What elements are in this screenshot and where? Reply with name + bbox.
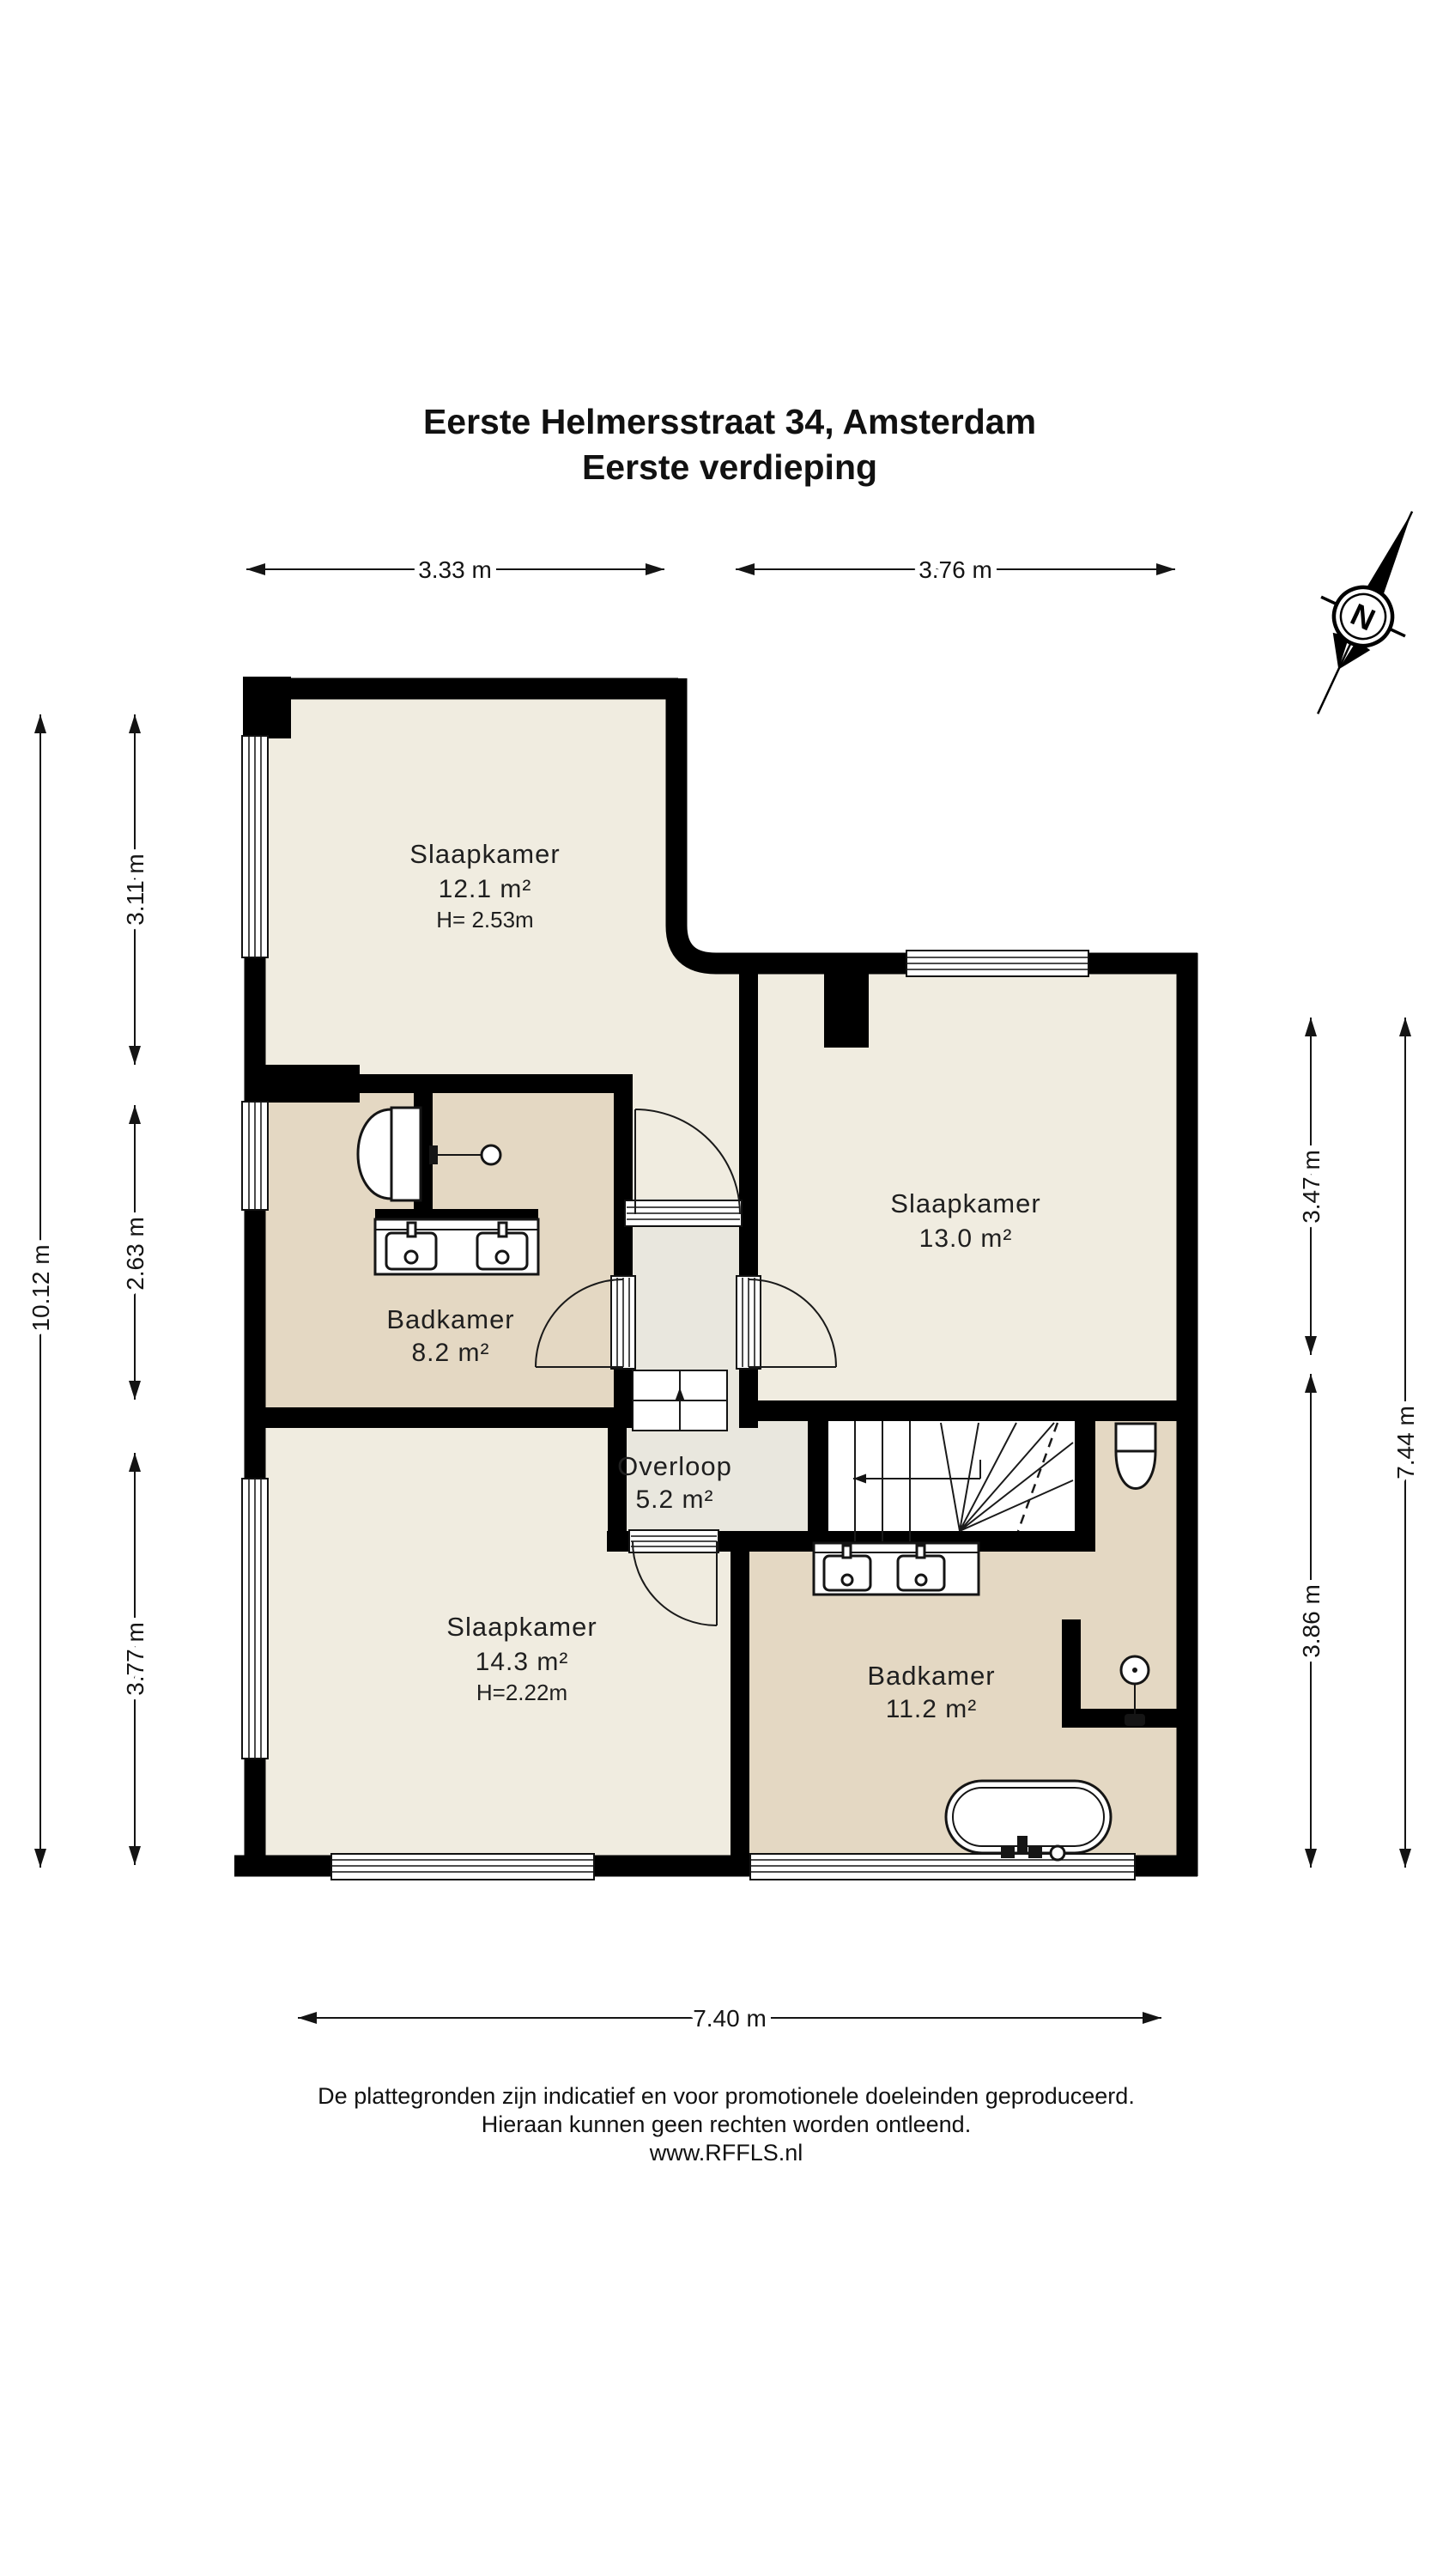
- room-name: Badkamer: [386, 1304, 514, 1334]
- window-icon: [906, 951, 1088, 976]
- dimension-value: 3.77 m: [122, 1622, 149, 1696]
- room-area: 8.2 m²: [411, 1339, 489, 1367]
- dimension-left-3: 3.77 m: [122, 1453, 149, 1865]
- footer-disclaimer: De plattegronden zijn indicatief en voor…: [318, 2083, 1135, 2166]
- dimension-left-1: 3.11 m: [122, 714, 149, 1065]
- dimension-left-outer: 10.12 m: [27, 714, 54, 1868]
- double-sink-icon: [375, 1219, 538, 1274]
- room-name: Badkamer: [867, 1661, 995, 1691]
- room-name: Overloop: [617, 1451, 732, 1481]
- room-area: 5.2 m²: [635, 1485, 713, 1514]
- room-height: H=2.22m: [476, 1680, 567, 1705]
- bathtub-icon: [946, 1781, 1111, 1860]
- north-arrow-icon: N: [1276, 492, 1449, 733]
- dimension-value: 2.63 m: [122, 1217, 149, 1291]
- room-name: Slaapkamer: [446, 1612, 597, 1642]
- floorplan-page: Eerste Helmersstraat 34, Amsterdam Eerst…: [0, 0, 1449, 2576]
- stairwell-area: [818, 1411, 1085, 1541]
- dimension-value: 7.44 m: [1392, 1406, 1419, 1479]
- window-icon: [750, 1854, 1135, 1880]
- footer-line3: www.RFFLS.nl: [649, 2140, 803, 2166]
- dimension-value: 3.47 m: [1298, 1150, 1325, 1224]
- dimension-bottom: 7.40 m: [298, 2005, 1161, 2032]
- footer-line1: De plattegronden zijn indicatief en voor…: [318, 2083, 1135, 2109]
- room-area: 11.2 m²: [886, 1695, 977, 1723]
- dimension-value: 7.40 m: [693, 2005, 767, 2032]
- dimension-value: 3.86 m: [1298, 1584, 1325, 1658]
- dimension-right-1: 3.47 m: [1298, 1018, 1325, 1355]
- room-area: 13.0 m²: [919, 1224, 1013, 1253]
- room-area: 12.1 m²: [439, 875, 532, 903]
- footer-line2: Hieraan kunnen geen rechten worden ontle…: [482, 2111, 971, 2137]
- dimension-value: 10.12 m: [27, 1244, 54, 1331]
- dimension-right-outer: 7.44 m: [1392, 1018, 1419, 1868]
- floorplan-canvas: Eerste Helmersstraat 34, Amsterdam Eerst…: [0, 0, 1449, 2576]
- toilet-icon: [1116, 1424, 1155, 1489]
- window-icon: [331, 1854, 594, 1880]
- dimension-right-2: 3.86 m: [1298, 1374, 1325, 1868]
- dimension-left-2: 2.63 m: [122, 1105, 149, 1400]
- dimension-value: 3.76 m: [919, 556, 992, 583]
- toilet-icon: [358, 1108, 421, 1200]
- window-icon: [242, 1479, 268, 1759]
- window-icon: [242, 736, 268, 957]
- dimension-top-right: 3.76 m: [736, 556, 1175, 583]
- dimension-top-left: 3.33 m: [246, 556, 664, 583]
- dimension-value: 3.11 m: [122, 854, 149, 926]
- room-area: 14.3 m²: [476, 1648, 569, 1676]
- window-icon: [242, 1102, 268, 1210]
- room-name: Slaapkamer: [409, 839, 560, 869]
- stairs-straight-flight: [633, 1370, 727, 1431]
- page-title: Eerste Helmersstraat 34, Amsterdam Eerst…: [423, 402, 1036, 487]
- room-height: H= 2.53m: [436, 907, 533, 933]
- room-fills: [255, 689, 1187, 1866]
- title-line1: Eerste Helmersstraat 34, Amsterdam: [423, 402, 1036, 441]
- double-sink-icon: [814, 1543, 979, 1595]
- room-name: Slaapkamer: [890, 1188, 1040, 1218]
- room-slaapkamer-13-0: [749, 963, 1187, 1411]
- dimension-value: 3.33 m: [418, 556, 492, 583]
- title-line2: Eerste verdieping: [582, 447, 877, 487]
